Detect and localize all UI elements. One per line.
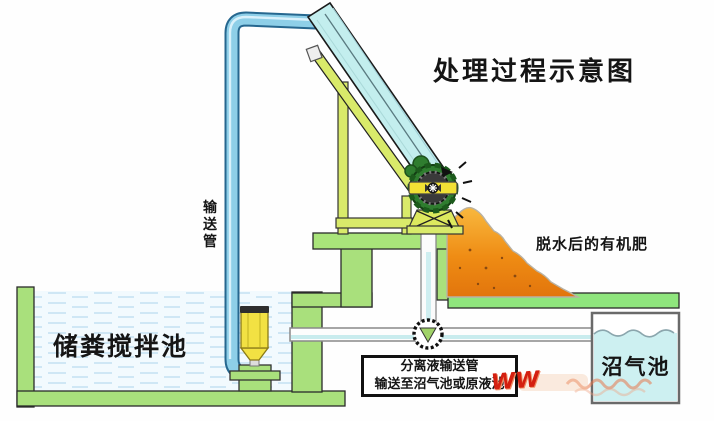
dewatered-fertilizer-label: 脱水后的有机肥	[536, 233, 648, 254]
pipe-valve	[414, 320, 442, 348]
biogas-pool-label: 沼气池	[594, 351, 678, 381]
process-diagram: 处理过程示意图 输送管 储粪搅拌池 脱水后的有机肥 沼气池 分离液输送管 输送至…	[0, 0, 714, 421]
callout-line-2: 输送至沼气池或原液池	[374, 376, 504, 394]
pool-left-wall	[17, 287, 34, 407]
conveying-pipe-label: 输送管	[203, 200, 219, 251]
watermark-text: WW	[490, 367, 540, 395]
separator-stand	[407, 210, 463, 234]
frame-beam	[336, 218, 412, 228]
pump-body	[241, 312, 268, 348]
foundation-column	[341, 240, 372, 307]
pump-cap	[240, 306, 269, 313]
storage-mixing-pool-label: 储粪搅拌池	[53, 327, 188, 363]
callout-line-1: 分离液输送管	[400, 358, 478, 376]
diagram-title: 处理过程示意图	[433, 51, 636, 88]
pump-base-flange	[230, 371, 280, 380]
hub-star	[429, 184, 437, 192]
separator-drain-pipe	[421, 233, 436, 329]
pool-bottom-wall	[17, 391, 345, 406]
